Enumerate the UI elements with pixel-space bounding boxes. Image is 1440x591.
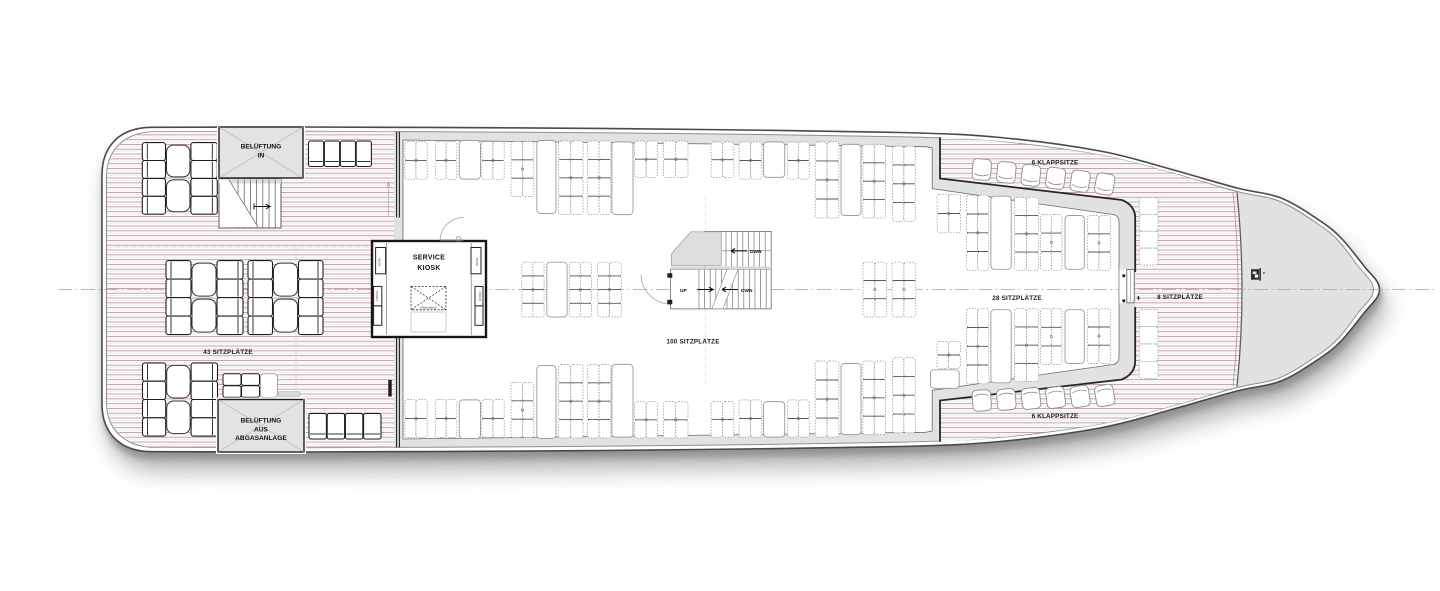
svg-text:BELÜFTUNG: BELÜFTUNG — [241, 416, 282, 425]
svg-text:100 SITZPLÄTZE: 100 SITZPLÄTZE — [666, 338, 719, 346]
svg-text:UP: UP — [680, 288, 687, 294]
svg-text:8 SITZPLÄTZE: 8 SITZPLÄTZE — [1157, 293, 1203, 301]
svg-text:IN: IN — [258, 152, 265, 159]
svg-text:ABGASANLAGE: ABGASANLAGE — [235, 435, 287, 442]
svg-text:43 SITZPLÄTZE: 43 SITZPLÄTZE — [203, 348, 252, 356]
svg-text:KIOSK: KIOSK — [378, 258, 382, 267]
svg-text:2 BAUR: 2 BAUR — [375, 291, 379, 301]
svg-text:BELÜFTUNG: BELÜFTUNG — [241, 142, 282, 151]
svg-text:SERVICE: SERVICE — [413, 255, 445, 262]
svg-text:KIOSK: KIOSK — [475, 258, 479, 267]
svg-text:28 SITZPLÄTZE: 28 SITZPLÄTZE — [992, 294, 1041, 302]
svg-text:Elektroblock: Elektroblock — [420, 306, 437, 310]
svg-text:AUS: AUS — [254, 426, 269, 433]
svg-text:6 KLAPPSITZE: 6 KLAPPSITZE — [1032, 413, 1079, 420]
svg-text:KIOSK: KIOSK — [417, 265, 440, 272]
svg-text:2 BAUR: 2 BAUR — [478, 291, 482, 301]
svg-text:DWN: DWN — [750, 249, 762, 255]
svg-text:6 KLAPPSITZE: 6 KLAPPSITZE — [1032, 160, 1079, 167]
svg-text:DWN: DWN — [741, 288, 753, 294]
